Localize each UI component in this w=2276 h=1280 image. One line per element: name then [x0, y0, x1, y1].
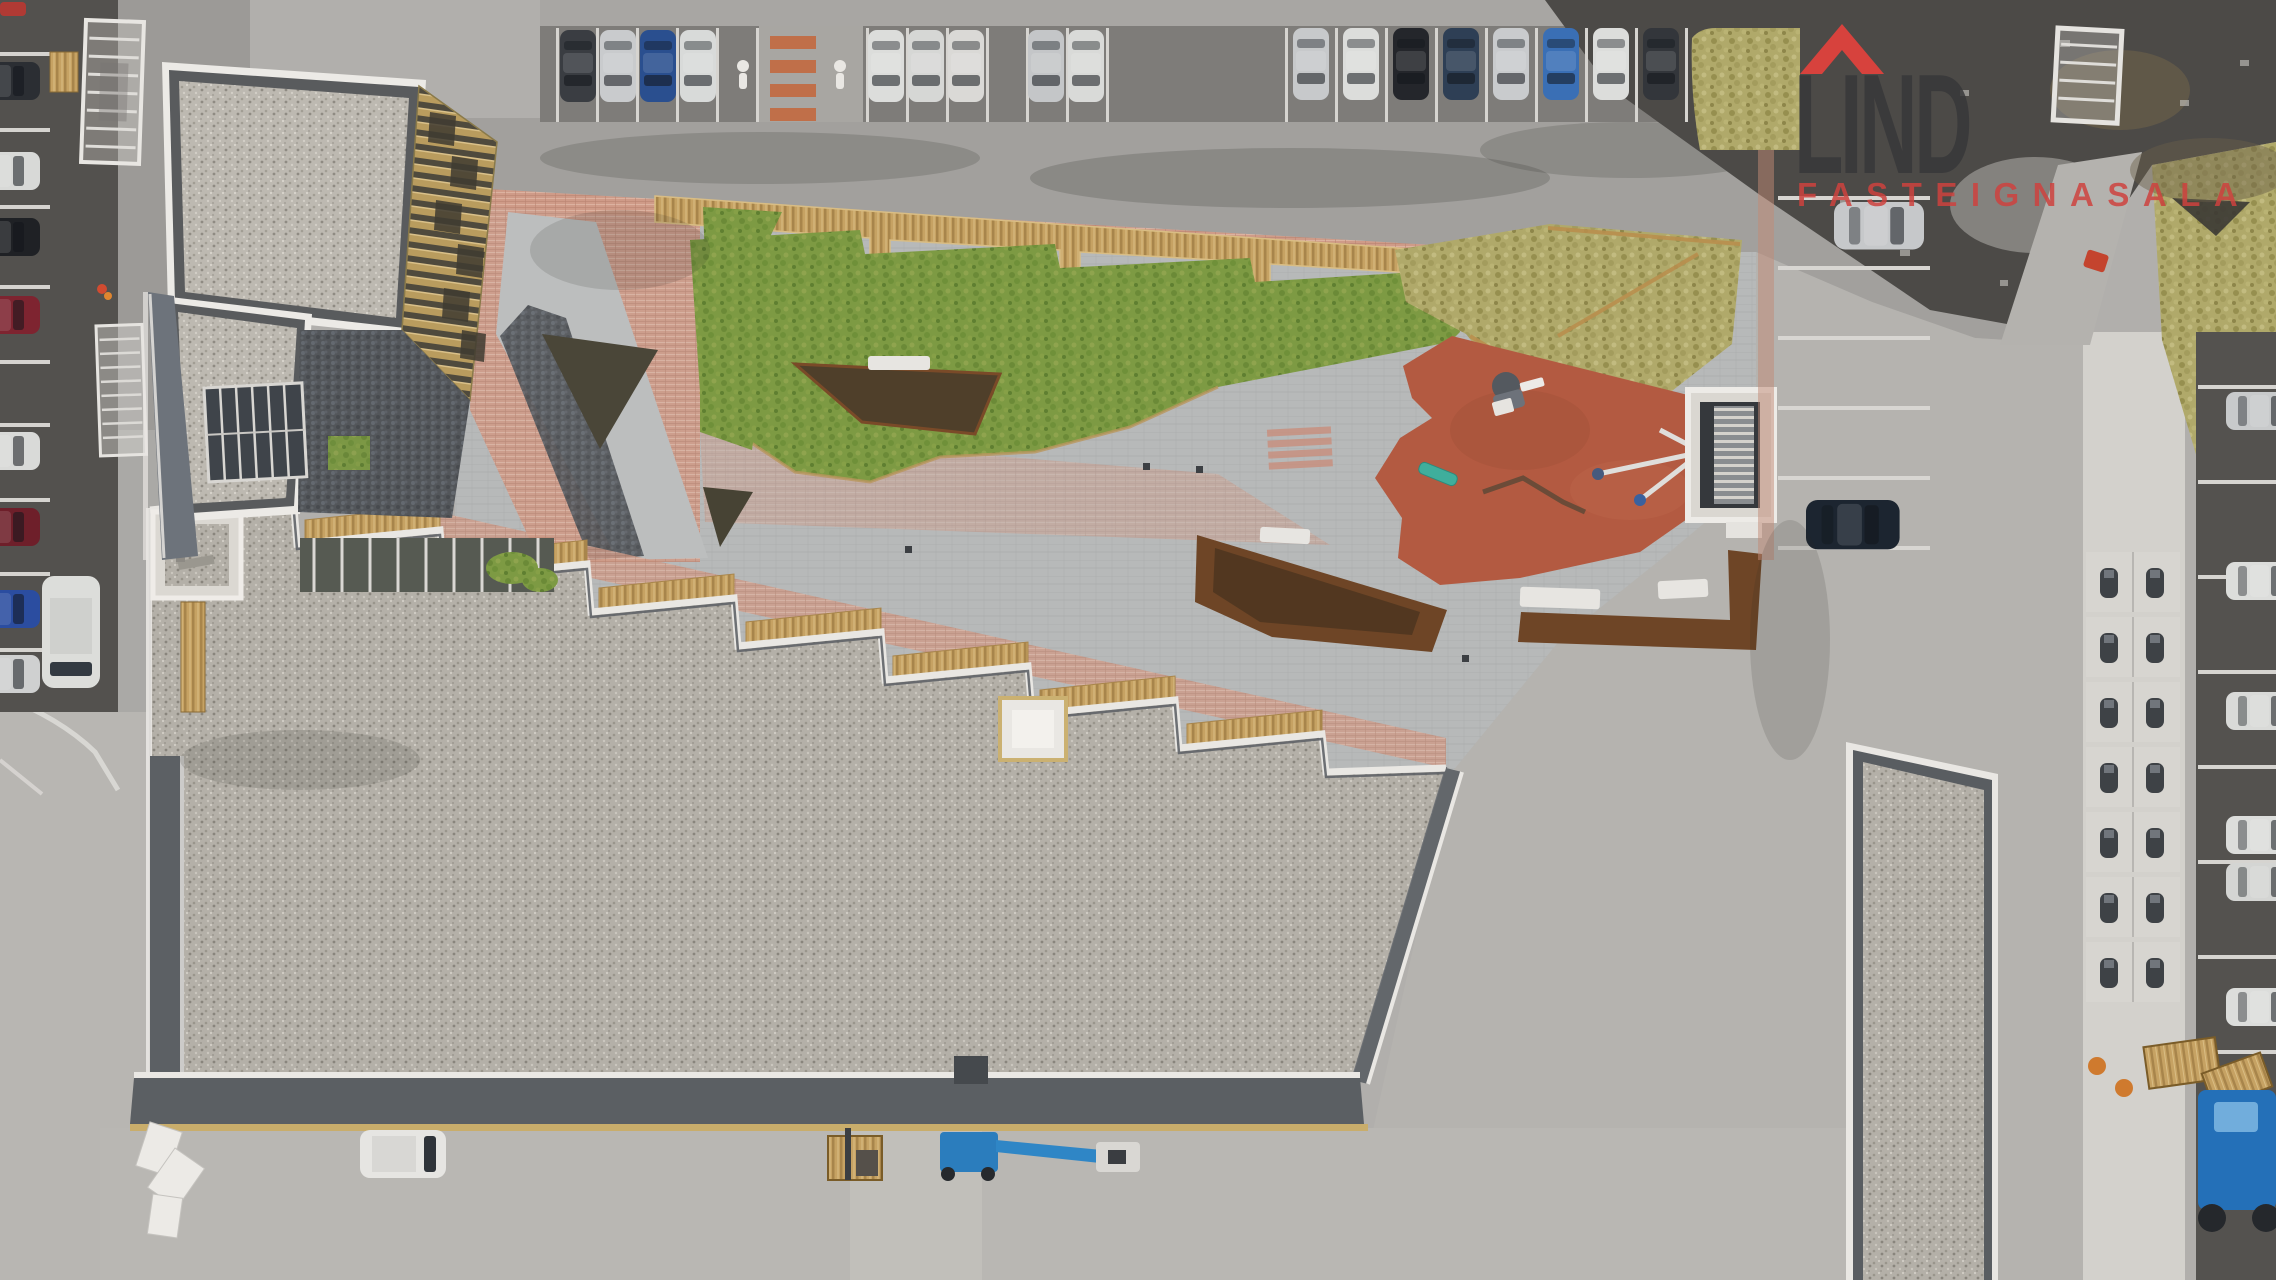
pink-curb	[1758, 150, 1774, 560]
orange-marker	[2088, 1057, 2106, 1075]
car	[948, 30, 984, 102]
wooden-crate	[50, 52, 78, 92]
stairs	[1714, 406, 1754, 504]
worker-orange-vest	[104, 292, 112, 300]
white-van-bottom	[360, 1130, 446, 1178]
glass-canopy	[204, 383, 307, 482]
car	[2226, 988, 2276, 1026]
car	[1643, 28, 1679, 100]
white-bench	[1658, 579, 1709, 600]
car	[560, 30, 596, 102]
small-trailer	[2053, 28, 2122, 123]
scooter-stalls	[2086, 552, 2180, 1002]
material-rack	[96, 324, 147, 456]
car	[1834, 202, 1924, 250]
gravel-roof	[179, 81, 409, 318]
roof-unit	[954, 1056, 988, 1084]
car	[1293, 28, 1329, 100]
car	[640, 30, 676, 102]
car	[0, 655, 40, 693]
white-bench	[868, 356, 930, 370]
car	[0, 432, 40, 470]
car	[0, 508, 40, 546]
car	[908, 30, 944, 102]
ground-floor-windows	[300, 538, 558, 592]
white-bench	[1260, 527, 1311, 545]
forklift	[828, 1128, 882, 1180]
car	[2226, 392, 2276, 430]
scene-canvas	[0, 0, 2276, 1280]
car	[0, 2, 26, 16]
west-fascia	[150, 756, 184, 1080]
car	[2226, 863, 2276, 901]
south-fascia	[130, 1078, 1364, 1124]
car	[1068, 30, 1104, 102]
car	[1806, 500, 1900, 549]
wood-screen-wall	[181, 602, 205, 712]
car	[600, 30, 636, 102]
car	[0, 296, 40, 334]
car	[2226, 692, 2276, 730]
car	[1443, 28, 1479, 100]
car	[1343, 28, 1379, 100]
grass-patch-top	[1692, 28, 1800, 150]
car	[1028, 30, 1064, 102]
car	[0, 218, 40, 256]
car	[0, 590, 40, 628]
car	[680, 30, 716, 102]
car	[2226, 816, 2276, 854]
white-bench	[1520, 587, 1601, 610]
roof-hatch	[1000, 698, 1066, 760]
car	[1493, 28, 1529, 100]
car	[868, 30, 904, 102]
car	[2226, 562, 2276, 600]
orange-marker	[2115, 1079, 2133, 1097]
aerial-photo: LIND FASTEIGNASALA	[0, 0, 2276, 1280]
car	[1593, 28, 1629, 100]
ladder-trailer	[81, 20, 144, 164]
car	[0, 62, 40, 100]
car	[1543, 28, 1579, 100]
fascia-wood-line	[130, 1124, 1368, 1131]
worker-orange-vest	[97, 284, 107, 294]
green-wall	[328, 436, 370, 470]
east-building	[1846, 742, 1998, 1280]
car	[1393, 28, 1429, 100]
white-van	[42, 576, 100, 688]
car	[0, 152, 40, 190]
